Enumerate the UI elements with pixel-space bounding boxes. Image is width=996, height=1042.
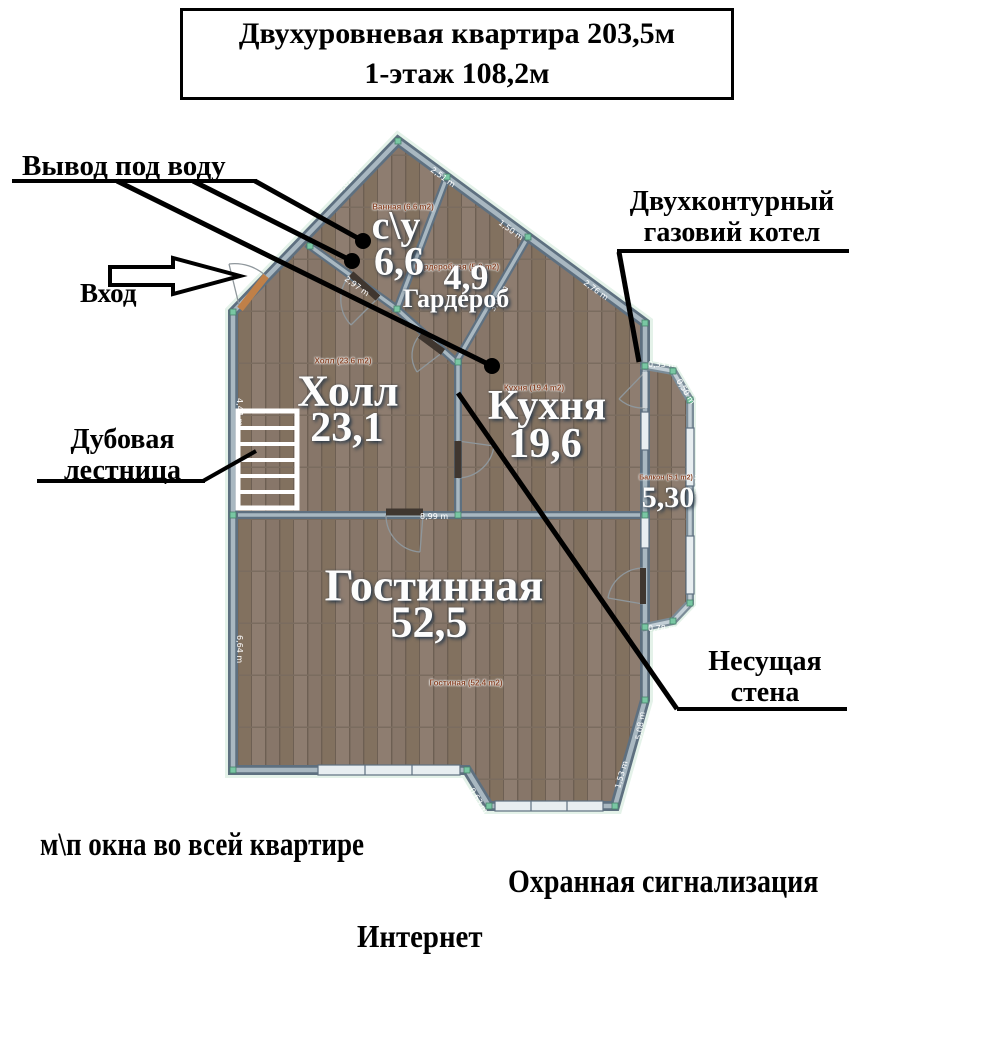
title-line-2: 1-этаж 108,2м [364,54,549,95]
hall-sublabel: Холл (23.6 m2) [315,357,372,366]
alarm-note: Охранная сигнализация [508,864,818,901]
water-point-dot [355,233,371,249]
balcony-glazing-lower [686,536,694,594]
title-line-1: Двухуровневая квартира 203,5м [239,14,675,55]
entrance-label: Вход [80,278,137,308]
title-box: Двухуровневая квартира 203,5м 1-этаж 108… [180,8,734,100]
dimension-label: 8,99 m [420,512,448,521]
windows-note: м\п окна во всей квартире [40,827,364,864]
balcony-area: 5,30 [642,481,695,515]
internet-note: Интернет [357,918,482,955]
wardrobe-label: Гардероб [403,284,510,314]
living-balcony-window [641,514,649,548]
oak-stairs-label-line-1: Дубовая [40,424,205,455]
hall-area: 23,1 [310,404,384,452]
floor-plan-page: 3,02 m 2,51 m 1,50 m 2,76 m 3,07 m 2,97 … [0,0,996,1042]
water-outlet-label: Вывод под воду [22,150,226,182]
boiler-label-line-1: Двухконтурный [612,186,852,217]
oak-stairs-label-line-2: лестница [40,455,205,486]
water-point-dot [484,358,500,374]
bearing-wall-label-line-1: Несущая [685,646,845,677]
bay-window [495,801,603,811]
water-point-dot [344,253,360,269]
living-sublabel: Гостиная (52.4 m2) [429,679,502,688]
oak-stairs-label: Дубовая лестница [40,424,205,487]
living-room-window [318,765,460,775]
living-area: 52,5 [391,597,468,648]
bearing-wall-label: Несущая стена [685,646,845,709]
dimension-label: 4,44 m [235,398,244,426]
boiler-label: Двухконтурный газовий котел [612,186,852,249]
boiler-label-line-2: газовий котел [612,217,852,248]
kitchen-balcony-window [641,412,649,450]
kitchen-area: 19,6 [508,420,582,468]
dimension-label: 0,78 m [648,624,676,633]
dimension-label: 0,33 m [648,360,676,369]
dimension-label: 6,64 m [235,635,244,663]
bearing-wall-label-line-2: стена [685,677,845,708]
bathroom-area: 6,6 [374,238,424,285]
